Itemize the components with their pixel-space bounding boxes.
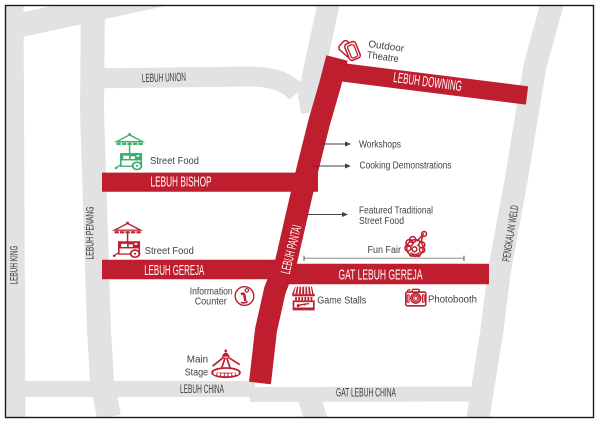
svg-text:Game Stalls: Game Stalls bbox=[317, 296, 366, 307]
svg-text:Street Food: Street Food bbox=[359, 216, 404, 227]
svg-text:Main: Main bbox=[187, 355, 209, 366]
svg-text:Street Food: Street Food bbox=[145, 246, 194, 257]
svg-text:Counter: Counter bbox=[195, 297, 228, 308]
svg-text:LEBUH BISHOP: LEBUH BISHOP bbox=[151, 175, 212, 191]
svg-text:LEBUH KING: LEBUH KING bbox=[9, 246, 21, 285]
svg-text:Featured Traditional: Featured Traditional bbox=[359, 205, 433, 216]
svg-text:Fun Fair: Fun Fair bbox=[368, 245, 402, 256]
svg-text:LEBUH UNION: LEBUH UNION bbox=[142, 70, 186, 86]
svg-text:GAT LEBUH GEREJA: GAT LEBUH GEREJA bbox=[339, 268, 423, 284]
svg-text:LEBUH GEREJA: LEBUH GEREJA bbox=[144, 263, 204, 279]
svg-text:Photobooth: Photobooth bbox=[428, 294, 477, 305]
svg-text:Street Food: Street Food bbox=[150, 156, 199, 167]
svg-text:LEBUH PENANG: LEBUH PENANG bbox=[85, 207, 97, 260]
svg-text:Stage: Stage bbox=[185, 367, 209, 378]
svg-text:GAT LEBUH CHINA: GAT LEBUH CHINA bbox=[336, 386, 396, 400]
svg-text:Cooking Demonstrations: Cooking Demonstrations bbox=[360, 160, 452, 171]
svg-text:LEBUH CHINA: LEBUH CHINA bbox=[180, 382, 224, 396]
svg-text:Workshops: Workshops bbox=[359, 140, 401, 151]
